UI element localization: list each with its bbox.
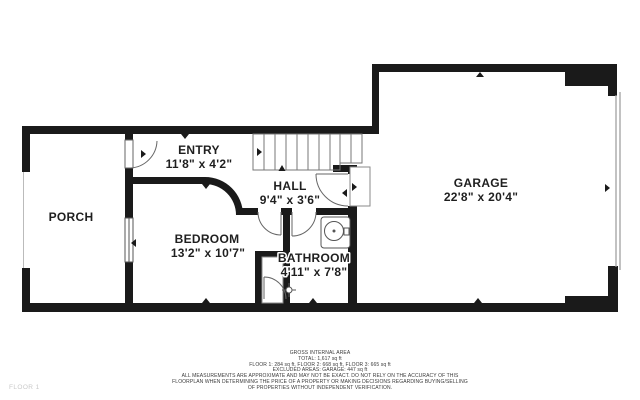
porch-label: PORCH <box>49 210 94 224</box>
stairs <box>253 134 362 170</box>
sink-icon <box>321 217 350 248</box>
entry-label: ENTRY <box>178 143 220 157</box>
porch-bedroom-window <box>125 218 133 262</box>
marker-up-icon <box>202 298 210 303</box>
disclaimer-line-3: OF PROPERTIES WITHOUT INDEPENDENT VERIFI… <box>0 386 640 392</box>
garage-dims: 22'8" x 20'4" <box>444 190 518 204</box>
bathroom-door <box>292 212 316 236</box>
marker-down-icon <box>181 134 189 139</box>
marker-up-icon <box>474 298 482 303</box>
floorplan-page: PORCH ENTRY 11'8" x 4'2" HALL 9'4" x 3'6… <box>0 0 640 400</box>
marker-down-icon <box>202 184 210 189</box>
marker-left-icon <box>342 189 347 197</box>
bedroom-door <box>258 212 281 235</box>
marker-right-icon <box>605 184 610 192</box>
entry-dims: 11'8" x 4'2" <box>166 157 233 171</box>
hall-label: HALL <box>273 179 306 193</box>
garage-label: GARAGE <box>454 176 508 190</box>
bedroom-dims: 13'2" x 10'7" <box>171 246 245 260</box>
hall-garage-door <box>316 167 370 206</box>
bathroom-dims: 4'11" x 7'8" <box>281 265 348 279</box>
floor-number-tag: FLOOR 1 <box>9 384 40 391</box>
marker-right-icon <box>257 148 262 156</box>
floorplan-drawing: PORCH ENTRY 11'8" x 4'2" HALL 9'4" x 3'6… <box>0 0 640 400</box>
stair-direction-arrow-icon <box>279 165 286 171</box>
garage-vehicle-door <box>616 92 620 270</box>
marker-right-icon <box>141 150 146 158</box>
bathroom-label: BATHROOM <box>278 251 350 265</box>
bedroom-label: BEDROOM <box>175 232 240 246</box>
marker-up-icon <box>309 298 317 303</box>
area-summary-disclaimer: GROSS INTERNAL AREA TOTAL: 1,617 sq ft F… <box>0 351 640 392</box>
hall-dims: 9'4" x 3'6" <box>260 193 320 207</box>
marker-up-icon <box>476 72 484 77</box>
